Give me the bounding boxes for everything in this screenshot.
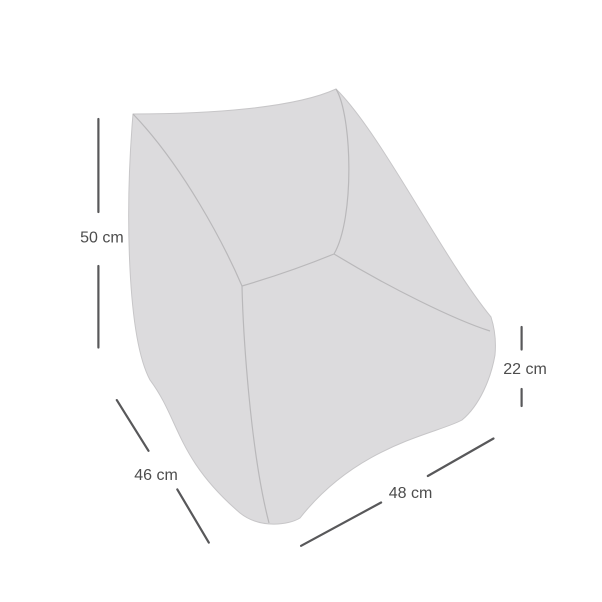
svg-text:50 cm: 50 cm xyxy=(80,230,124,247)
svg-text:48 cm: 48 cm xyxy=(389,485,433,502)
svg-text:46 cm: 46 cm xyxy=(134,467,178,484)
svg-text:22 cm: 22 cm xyxy=(503,361,547,378)
